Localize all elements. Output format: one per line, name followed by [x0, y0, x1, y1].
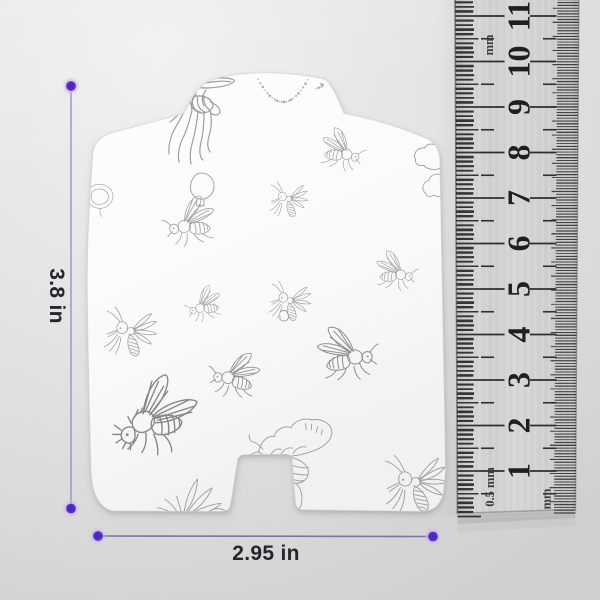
svg-text:2: 2 [501, 418, 537, 434]
svg-text:3: 3 [501, 372, 537, 388]
svg-text:10: 10 [501, 46, 537, 78]
svg-text:2.95 in: 2.95 in [232, 542, 299, 565]
svg-text:mm: mm [482, 34, 496, 55]
svg-text:8: 8 [501, 145, 537, 161]
svg-text:6: 6 [501, 236, 537, 252]
svg-text:11: 11 [501, 1, 537, 31]
svg-text:0.5 mm: 0.5 mm [483, 467, 497, 507]
svg-text:5: 5 [501, 281, 537, 297]
svg-text:mm: mm [540, 488, 554, 509]
svg-text:3.8 in: 3.8 in [45, 268, 68, 324]
svg-text:7: 7 [501, 190, 537, 206]
svg-text:1: 1 [501, 463, 537, 479]
svg-text:9: 9 [501, 99, 537, 115]
svg-text:4: 4 [501, 327, 537, 343]
